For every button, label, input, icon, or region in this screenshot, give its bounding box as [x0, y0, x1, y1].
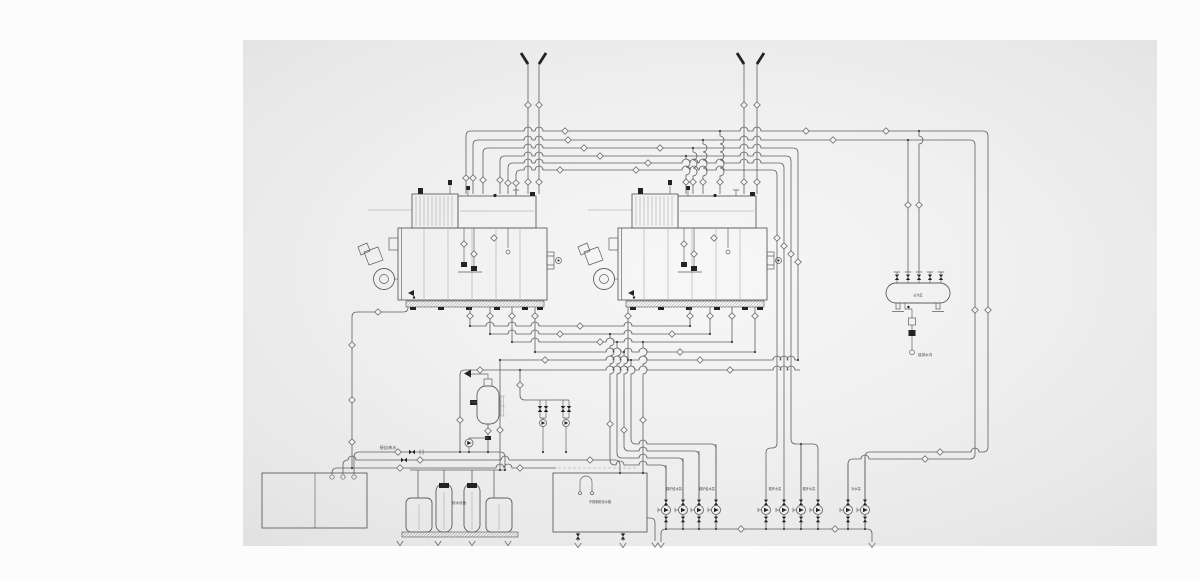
drawing-canvas: [243, 40, 1157, 546]
steam-header-label: 分汽缸: [913, 293, 923, 298]
tap-water-label: 接自来水: [380, 444, 398, 451]
softener-label: 软水设备: [452, 500, 467, 505]
pump-group-label: 锅炉给水泵: [666, 486, 683, 491]
pump-group-label: 锅炉给水泵: [699, 486, 716, 491]
water-tank-label: 不锈钢软化水箱: [589, 499, 612, 504]
pump-group-label: 循环水泵: [769, 486, 783, 491]
header-drain-label: 接排水沟: [918, 352, 933, 357]
boiler-plant-diagram: 分汽缸 接排水沟: [0, 0, 1200, 580]
pump-group-label: 循环水泵: [803, 486, 817, 491]
pump-group-label: 补水泵: [851, 486, 861, 491]
